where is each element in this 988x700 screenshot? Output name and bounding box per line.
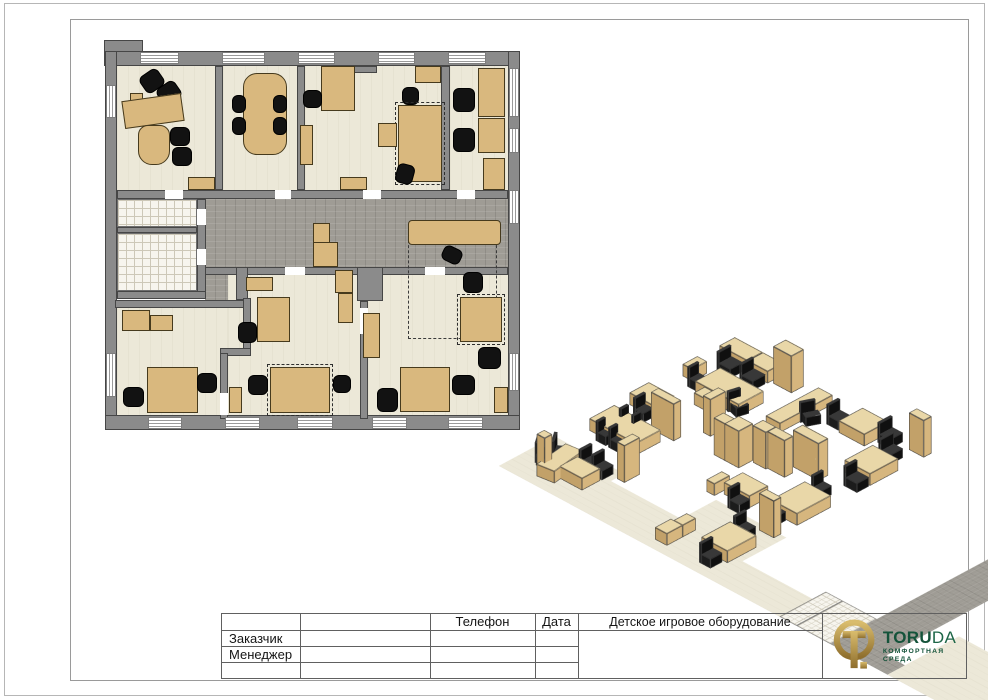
cab [313,242,338,267]
chair [248,375,268,395]
chair [303,90,322,108]
cab-3d-side [617,442,624,483]
window [140,52,179,64]
chair [232,117,246,135]
sofa [408,220,501,245]
door-opening [197,249,206,265]
chair [197,373,217,393]
desk [400,367,450,412]
logo-text: TORUDA КОМФОРТНАЯ СРЕДА [883,629,956,664]
logo-tagline-2: СРЕДА [883,657,956,664]
window [106,85,116,118]
project-title: Детское игровое оборудование [578,614,822,630]
desk [478,118,505,153]
toruda-logo-mark [832,618,878,674]
cab-3d [725,453,753,468]
chair [232,95,246,113]
chair [170,127,190,146]
cab-3d [768,464,793,478]
tile-floor [117,233,197,291]
window [225,417,260,429]
cab-3d-side [753,425,766,469]
cab-3d [773,377,804,393]
window [106,353,116,397]
cab-3d-side [714,418,725,461]
cab-3d-side [768,431,785,477]
date-label: Дата [535,614,578,630]
window [372,417,407,429]
chair [273,95,287,113]
floor-plan-2d [105,51,520,430]
chair-3d [846,480,869,492]
brand-name: TORUDA [883,629,956,646]
desk [150,315,173,331]
tile-floor [117,199,197,227]
desk [257,297,290,342]
chair-3d-side [806,415,821,427]
window [297,417,333,429]
desk [415,66,441,83]
door-opening [220,393,228,415]
iso-ground-plane [499,340,948,581]
wall [441,66,450,190]
chair [453,128,475,152]
window [222,52,265,64]
wall [357,267,383,301]
wall [215,66,223,190]
desk [321,66,355,111]
window [509,190,519,224]
desk [138,125,170,165]
desk [147,367,198,413]
cab-3d [617,471,640,483]
cab [313,223,330,243]
cab [340,177,367,190]
cab [188,177,215,190]
chair [402,87,419,105]
cab [335,270,353,293]
chair [377,388,398,412]
chair [333,375,351,393]
window [448,417,483,429]
door-opening [457,190,475,199]
title-block: Заказчик Менеджер Телефон Дата Детское и… [221,613,967,679]
door-opening [285,267,305,275]
cab-3d-side [624,438,639,483]
door-opening [275,190,291,199]
cab-3d-side [784,436,792,478]
title-block-divider [222,630,822,631]
brand-bold: TORU [883,628,932,647]
wall [115,300,248,308]
wall [117,291,206,299]
chair [123,387,144,407]
cab [483,158,505,190]
chair [453,88,475,112]
desk [122,310,150,331]
chair [463,272,483,293]
cab-3d-side [791,349,803,393]
cab [229,387,242,413]
desk [378,123,397,147]
cab-3d-side [674,400,681,441]
customer-label: Заказчик [229,631,282,647]
brand-light: DA [932,628,956,647]
manager-label: Менеджер [229,647,292,663]
chair [273,117,287,135]
window [448,52,486,64]
window [509,128,519,153]
desk [478,68,505,117]
door-opening [363,190,381,199]
cab-3d-side [924,416,932,457]
window [509,68,519,117]
wall [117,227,197,233]
cab [363,313,380,358]
cab [300,125,313,165]
cab-3d-side [739,424,753,469]
window [148,417,182,429]
table [243,73,287,155]
logo-tagline-1: КОМФОРТНАЯ [883,649,956,656]
cab-3d-side [703,396,710,437]
drawing-sheet: Заказчик Менеджер Телефон Дата Детское и… [0,0,988,700]
desk [246,277,273,291]
cab-3d-side [774,497,781,538]
cab-3d [909,446,932,458]
chair [238,322,257,343]
door-opening [165,190,183,199]
company-logo: TORUDA КОМФОРТНАЯ СРЕДА [822,614,966,678]
floor-plan-3d-iso [486,308,960,608]
window [378,52,415,64]
desk [270,367,330,413]
window [298,52,335,64]
cab [338,293,353,323]
chair [452,375,475,395]
chair [172,147,192,166]
phone-label: Телефон [430,614,535,630]
door-opening [197,209,206,225]
